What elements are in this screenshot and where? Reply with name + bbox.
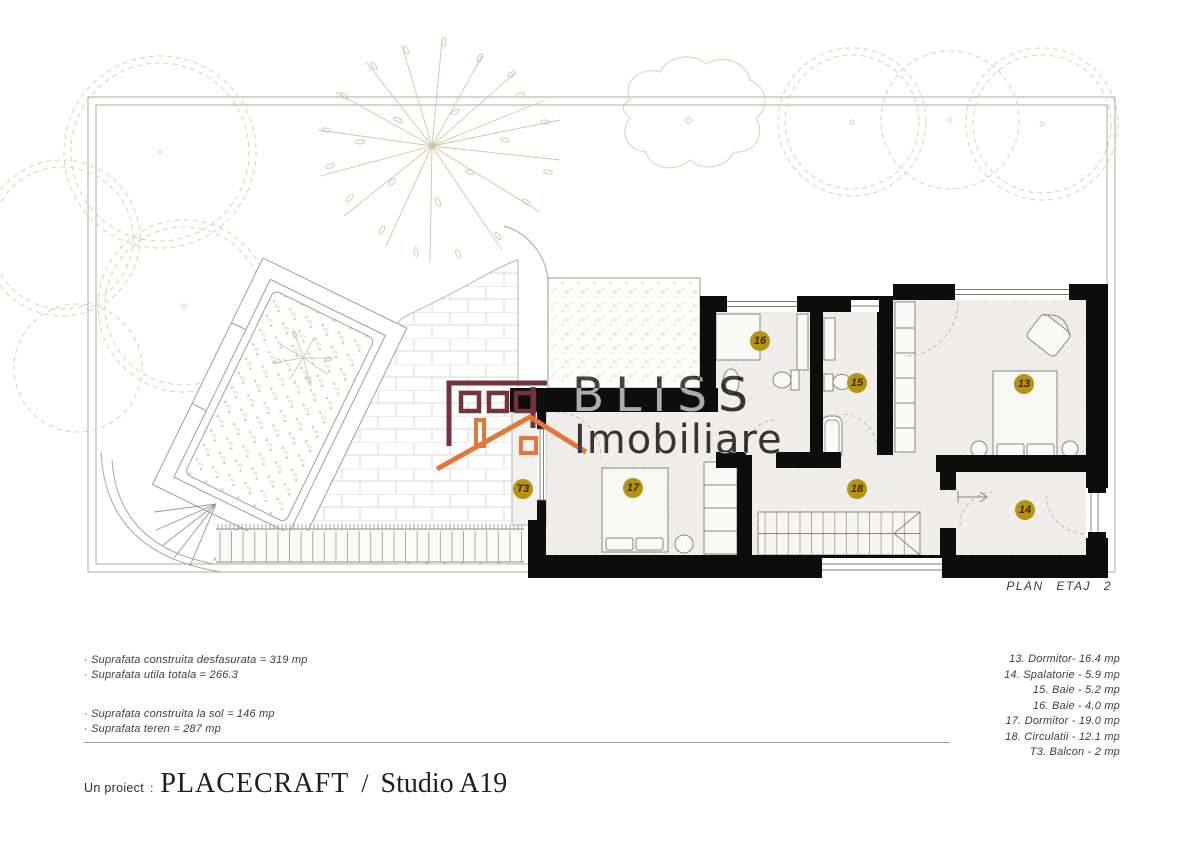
room-badge-18: 18 bbox=[847, 479, 867, 499]
room-badge-t3: T3 bbox=[513, 479, 533, 499]
project-credit: Un proiect : PLACECRAFT / Studio A19 bbox=[84, 768, 507, 800]
area-line: · Suprafata teren = 287 mp bbox=[84, 722, 308, 737]
room-badge-17: 17 bbox=[623, 478, 643, 498]
legend-line: 14. Spalatorie - 5.9 mp bbox=[1004, 668, 1120, 684]
legend-line: 16. Baie - 4.0 mp bbox=[1004, 699, 1120, 715]
floor-plan-page: BLISS Imobiliare 13 14 15 16 17 18 T3 PL… bbox=[0, 0, 1200, 849]
credit-studio: Studio A19 bbox=[381, 768, 508, 800]
room-badge-16: 16 bbox=[750, 331, 770, 351]
area-summary: · Suprafata construita desfasurata = 319… bbox=[84, 653, 308, 737]
plan-title: PLAN ETAJ 2 bbox=[1006, 579, 1112, 593]
tree-cloud bbox=[623, 57, 765, 168]
staircase bbox=[758, 512, 920, 555]
room-badge-13: 13 bbox=[1014, 374, 1034, 394]
room-badge-14: 14 bbox=[1015, 500, 1035, 520]
watermark-brand-name: BLISS bbox=[572, 368, 759, 423]
credit-prefix: Un proiect bbox=[84, 781, 144, 795]
area-line: · Suprafata utila totala = 266.3 bbox=[84, 668, 308, 683]
credit-colon: : bbox=[150, 781, 153, 795]
area-line: · Suprafata construita la sol = 146 mp bbox=[84, 707, 308, 722]
legend-line: T3. Balcon - 2 mp bbox=[1004, 745, 1120, 761]
legend-line: 15. Baie - 5.2 mp bbox=[1004, 683, 1120, 699]
legend-line: 13. Dormitor- 16.4 mp bbox=[1004, 652, 1120, 668]
legend-line: 18. Circulatii - 12.1 mp bbox=[1004, 730, 1120, 746]
room-badge-15: 15 bbox=[847, 373, 867, 393]
credit-slash: / bbox=[361, 769, 368, 799]
watermark-brand-word: Imobiliare bbox=[574, 417, 783, 463]
tree-radial bbox=[318, 37, 560, 262]
credit-brand: PLACECRAFT bbox=[160, 768, 349, 800]
room-legend: 13. Dormitor- 16.4 mp 14. Spalatorie - 5… bbox=[1004, 652, 1120, 761]
divider-rule bbox=[84, 742, 950, 743]
area-line: · Suprafata construita desfasurata = 319… bbox=[84, 653, 308, 668]
legend-line: 17. Dormitor - 19.0 mp bbox=[1004, 714, 1120, 730]
